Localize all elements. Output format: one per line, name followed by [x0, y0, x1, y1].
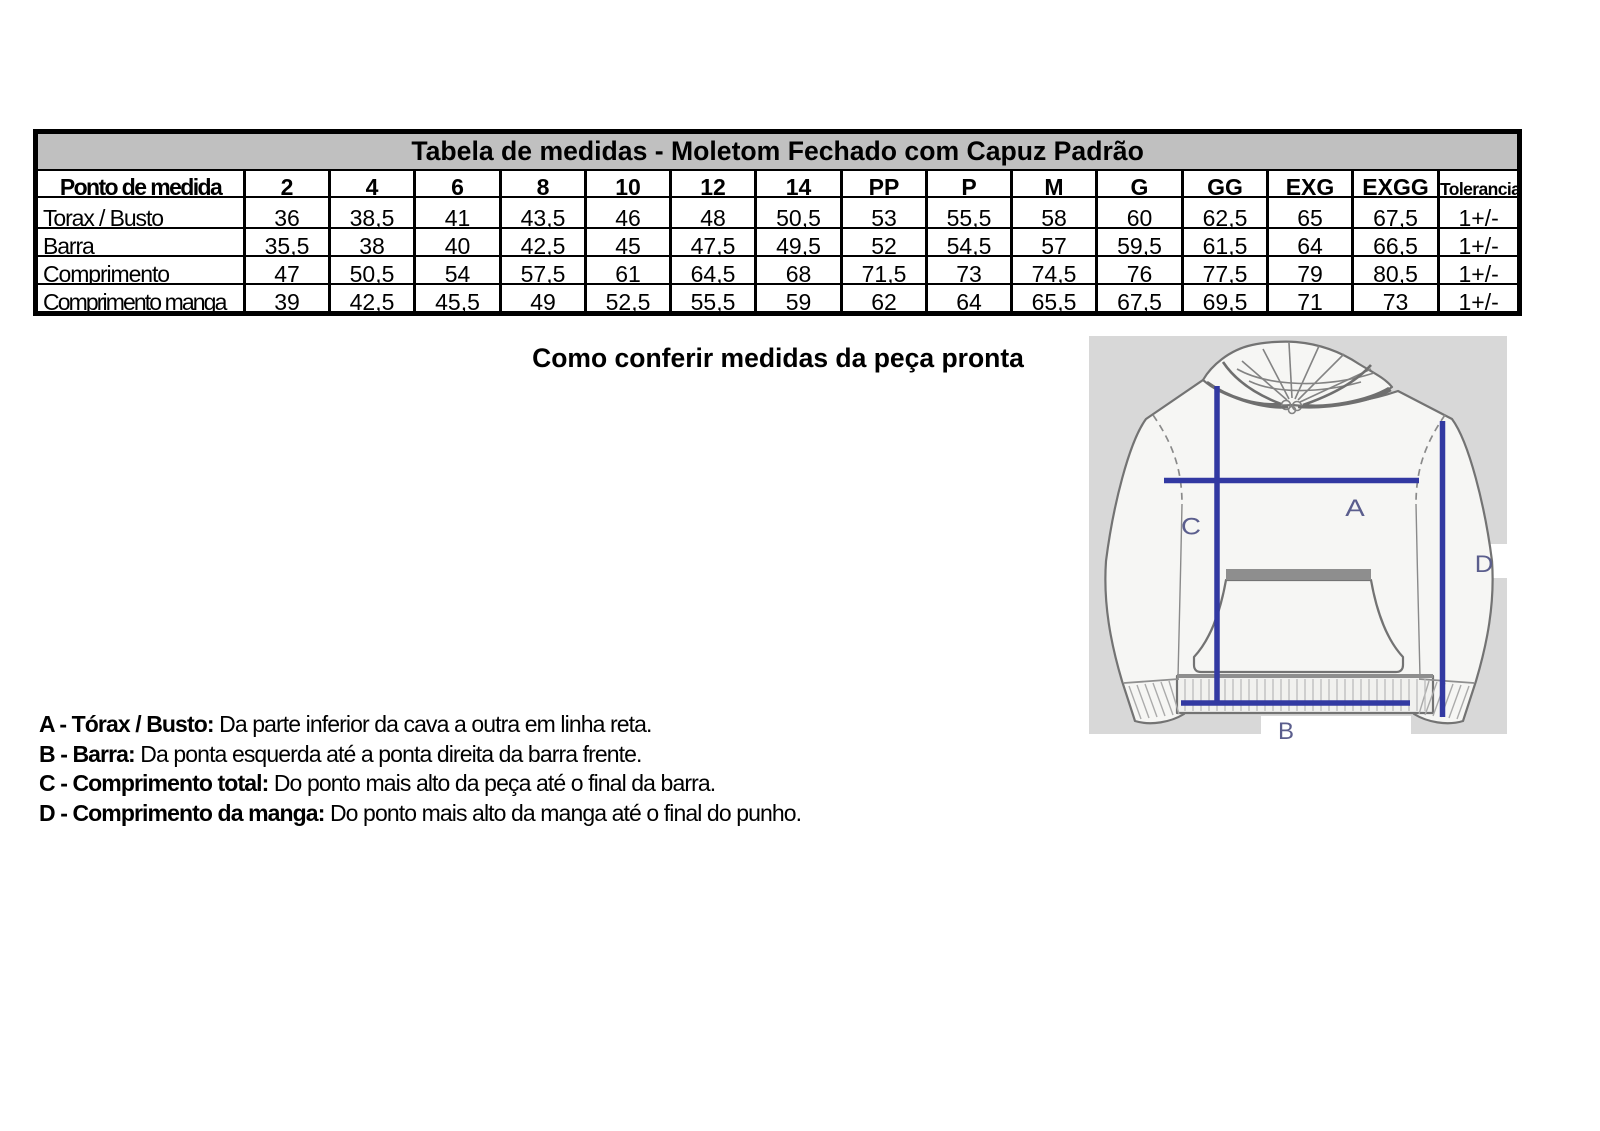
svg-text:C: C [1181, 514, 1201, 541]
svg-text:A: A [1345, 495, 1365, 522]
svg-text:D: D [1475, 551, 1494, 578]
svg-text:B: B [1278, 718, 1294, 745]
